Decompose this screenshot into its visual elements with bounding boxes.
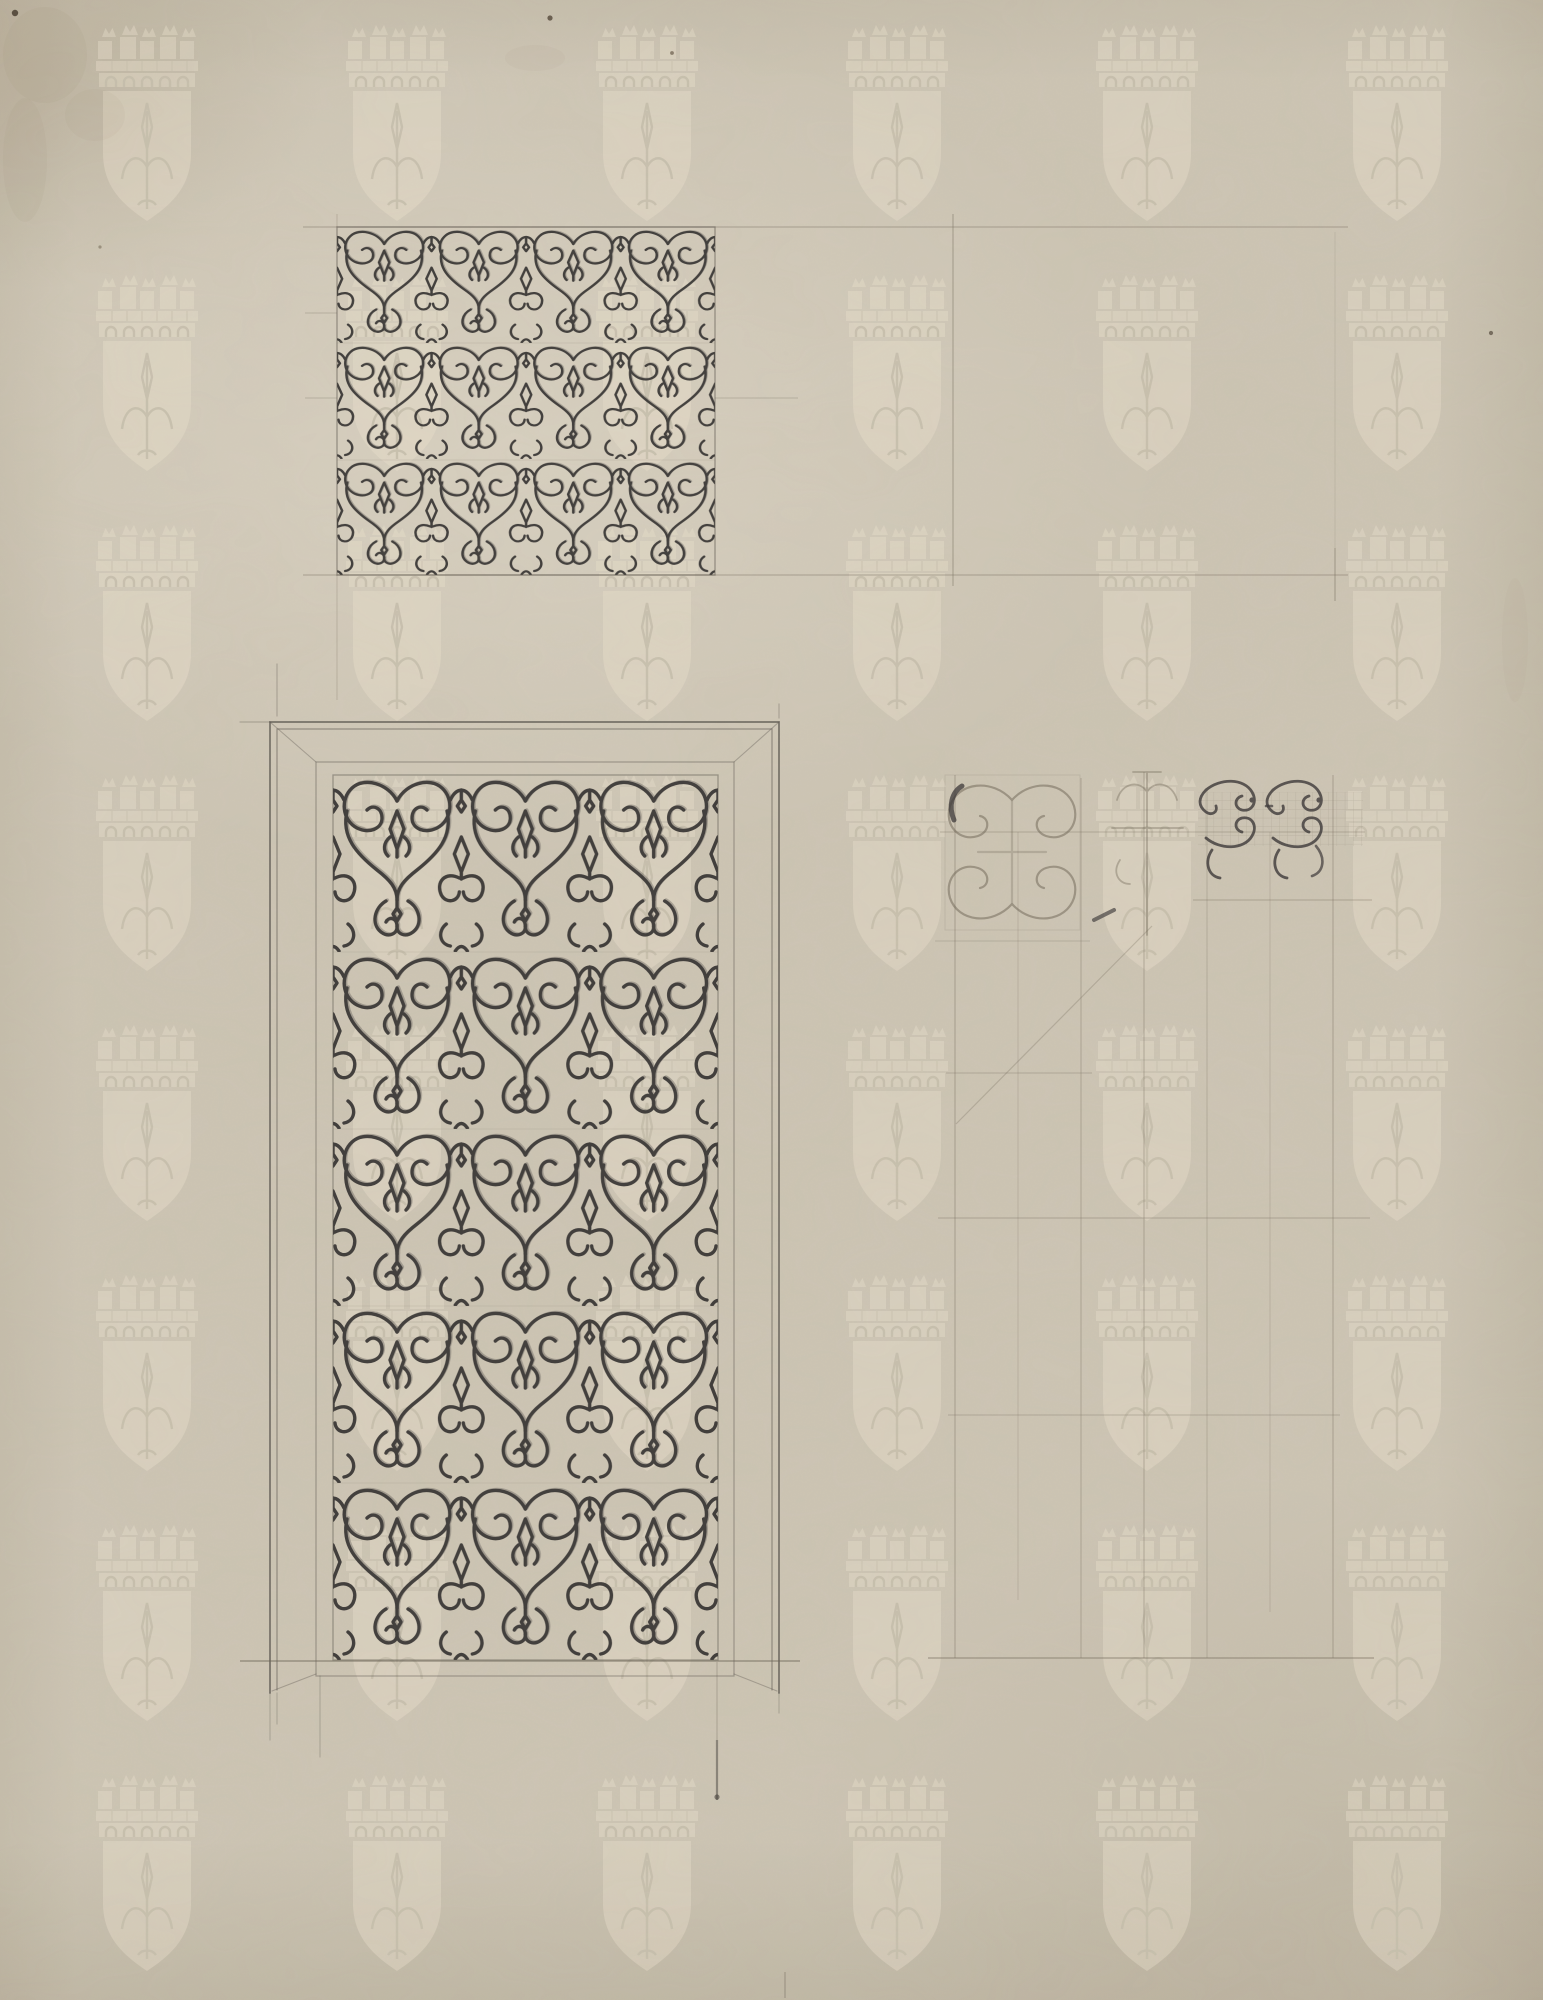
drawing-sheet — [0, 0, 1543, 2000]
fine-mesh-grid — [1198, 792, 1363, 846]
square-scroll-panel — [337, 227, 715, 575]
drawing-canvas — [0, 0, 1543, 2000]
